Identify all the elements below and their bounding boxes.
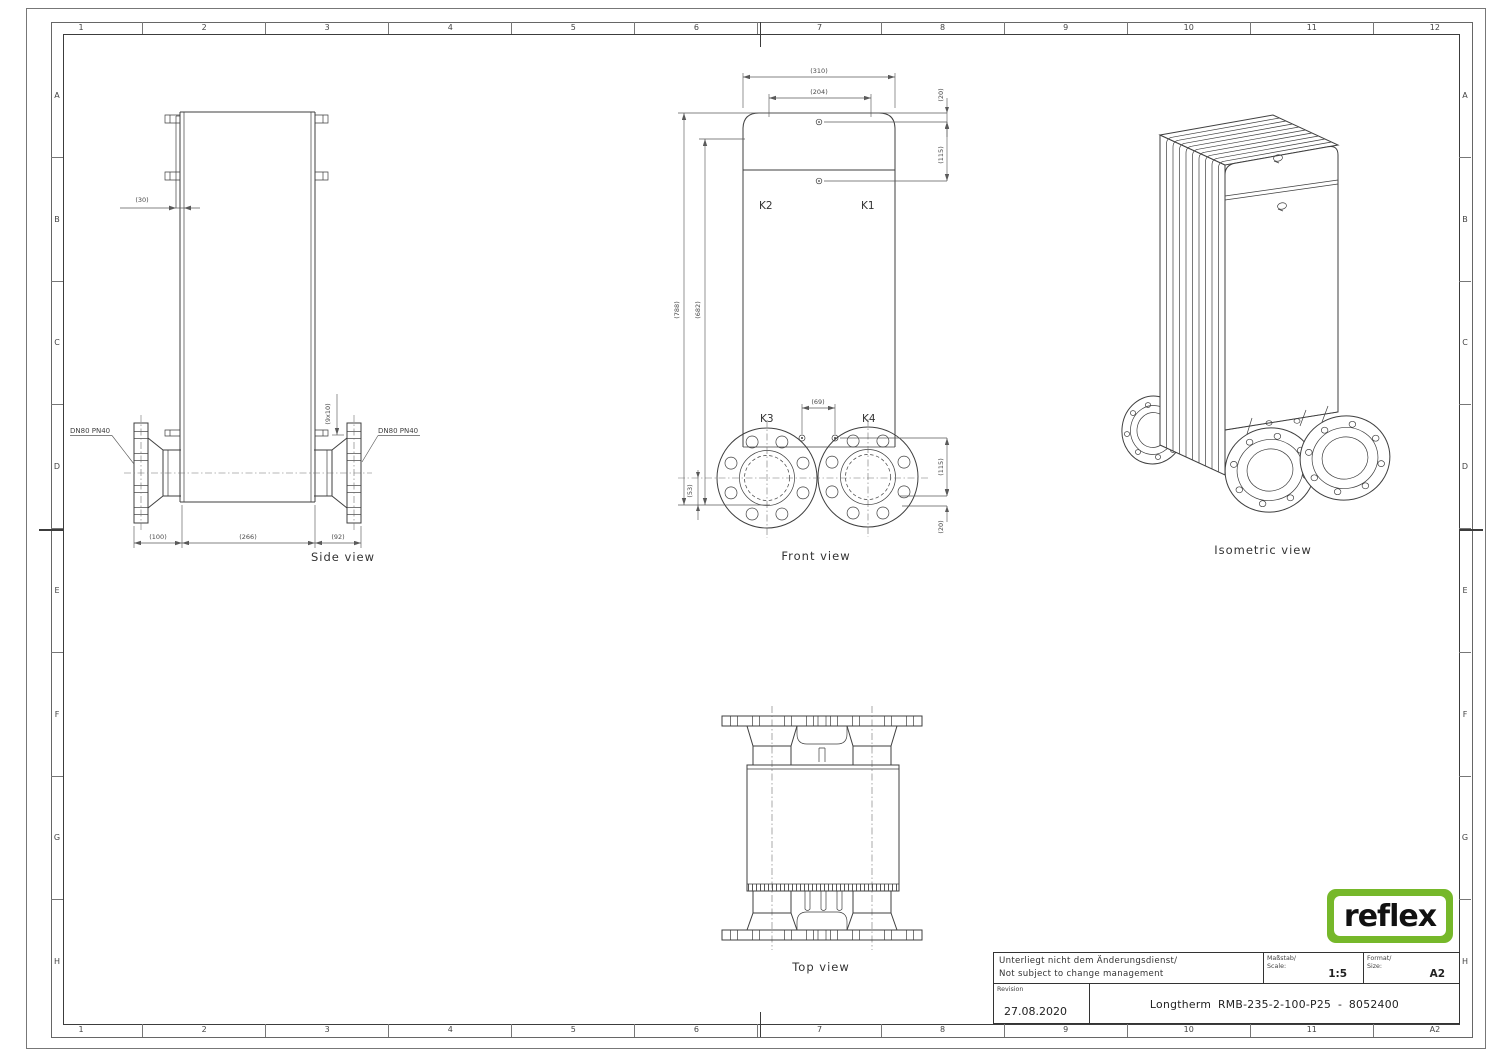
grid-row-label: H [51,899,63,1023]
grid-row-label: F [51,652,63,776]
revision-date: 27.08.2020 [1004,1005,1067,1018]
port-label-k4: K4 [862,413,876,425]
grid-column-label: 2 [142,1024,265,1037]
grid-column-label: 1 [20,1024,142,1037]
reflex-logo: reflex [1327,889,1453,943]
grid-column-label: 2 [142,22,265,34]
grid-column-label: 3 [265,22,388,34]
change-note-line2: Not subject to change management [999,968,1258,981]
svg-text:(204): (204) [810,88,827,96]
revision-label: Revision [997,986,1023,994]
isometric-view-drawing: Isometric view [1100,100,1412,570]
grid-row-label: E [1459,528,1471,652]
grid-column-label: 4 [388,22,511,34]
front-view-label: Front view [781,549,850,563]
top-view-bottom-flange [722,891,922,940]
front-view-drawing: K2 K1 K3 K4 [650,60,960,570]
front-view-body [743,113,895,447]
drawing-title: Longtherm RMB-235-2-100-P25 - 8052400 [1089,984,1459,1024]
grid-row-label: G [51,776,63,900]
grid-column-label: 10 [1127,1024,1250,1037]
svg-text:(30): (30) [135,196,148,204]
dn80-label-right: DN80 PN40 [378,427,418,435]
svg-text:(115): (115) [937,146,945,163]
grid-column-label: 7 [757,22,880,34]
grid-column-label: 5 [511,1024,634,1037]
isometric-view-label: Isometric view [1214,543,1312,557]
drawing-sheet: 123456789101112 1234567891011A2 ABCDEFGH… [0,0,1500,1061]
center-mark-right [1459,529,1483,531]
side-view-dn-labels: DN80 PN40 DN80 PN40 [70,427,420,464]
format-labels: Format/ Size: [1367,955,1391,970]
format-cell: Format/ Size: A2 [1363,953,1461,984]
grid-row-label: F [1459,652,1471,776]
grid-column-label: 9 [1004,1024,1127,1037]
grid-row-label: D [1459,404,1471,528]
top-view-body [747,765,899,891]
grid-column-label: 8 [881,1024,1004,1037]
side-view-drawing: DN80 PN40 DN80 PN40 (30) (9x10) (1 [60,100,440,570]
grid-column-label: 6 [634,1024,757,1037]
change-note-line1: Unterliegt nicht dem Änderungsdienst/ [999,955,1258,968]
svg-text:(92): (92) [331,533,344,541]
side-view-label: Side view [311,550,375,564]
grid-row-label: G [1459,776,1471,900]
title-block-row1: Unterliegt nicht dem Änderungsdienst/ No… [994,953,1459,984]
front-view-dim-right-top: (20) (115) [678,88,949,181]
side-view-dim-30: (30) [120,196,200,210]
grid-columns-top: 123456789101112 [20,22,1496,34]
grid-column-label: 11 [1250,1024,1373,1037]
svg-text:(266): (266) [239,533,256,541]
top-view-drawing: Top view [698,698,950,988]
grid-column-label: A2 [1373,1024,1496,1037]
grid-row-label: A [1459,34,1471,157]
revision-cell: Revision 27.08.2020 [994,984,1089,1024]
svg-text:(682): (682) [694,301,702,318]
svg-text:(115): (115) [937,458,945,475]
grid-column-label: 5 [511,22,634,34]
grid-column-label: 6 [634,22,757,34]
grid-column-label: 12 [1373,22,1496,34]
svg-text:(20): (20) [937,88,945,101]
grid-column-label: 11 [1250,22,1373,34]
side-view-dim-chain: (100) (266) (92) [134,505,361,548]
svg-text:(53): (53) [686,484,694,497]
grid-column-label: 10 [1127,22,1250,34]
grid-column-label: 8 [881,22,1004,34]
front-view-small-ports [799,435,838,441]
reflex-logo-text: reflex [1334,896,1446,936]
port-label-k1: K1 [861,200,875,212]
top-view-top-flange [722,716,922,765]
grid-columns-bottom: 1234567891011A2 [20,1024,1496,1037]
title-block: Unterliegt nicht dem Änderungsdienst/ No… [993,952,1460,1024]
side-view-port-stubs [165,115,328,436]
grid-row-label: B [1459,157,1471,281]
svg-text:(100): (100) [149,533,166,541]
svg-text:(20): (20) [937,520,945,533]
svg-text:(310): (310) [810,67,827,75]
iso-right-flange [1292,406,1397,508]
change-note: Unterliegt nicht dem Änderungsdienst/ No… [994,953,1263,984]
svg-text:(788): (788) [673,301,681,318]
dn80-label-left: DN80 PN40 [70,427,110,435]
grid-column-label: 7 [757,1024,880,1037]
scale-cell: Maßstab/ Scale: 1:5 [1263,953,1363,984]
side-view-body [176,112,315,502]
center-mark-bottom [760,1012,762,1037]
scale-value: 1:5 [1328,968,1347,980]
svg-text:(9x10): (9x10) [324,403,332,424]
port-label-k2: K2 [759,200,773,212]
title-block-row2: Revision 27.08.2020 Longtherm RMB-235-2-… [994,984,1459,1024]
top-view-label: Top view [791,960,850,974]
grid-row-label: C [1459,281,1471,405]
iso-front-face [1225,147,1338,430]
grid-column-label: 4 [388,1024,511,1037]
grid-column-label: 1 [20,22,142,34]
format-value: A2 [1430,968,1445,980]
front-view-top-ports [816,119,822,184]
grid-column-label: 9 [1004,22,1127,34]
center-mark-top [760,22,762,47]
side-view-dim-pitch: (9x10) [324,394,344,435]
front-view-dim-69: (69) [802,398,835,434]
grid-column-label: 3 [265,1024,388,1037]
svg-text:(69): (69) [811,398,824,406]
scale-labels: Maßstab/ Scale: [1267,955,1296,970]
